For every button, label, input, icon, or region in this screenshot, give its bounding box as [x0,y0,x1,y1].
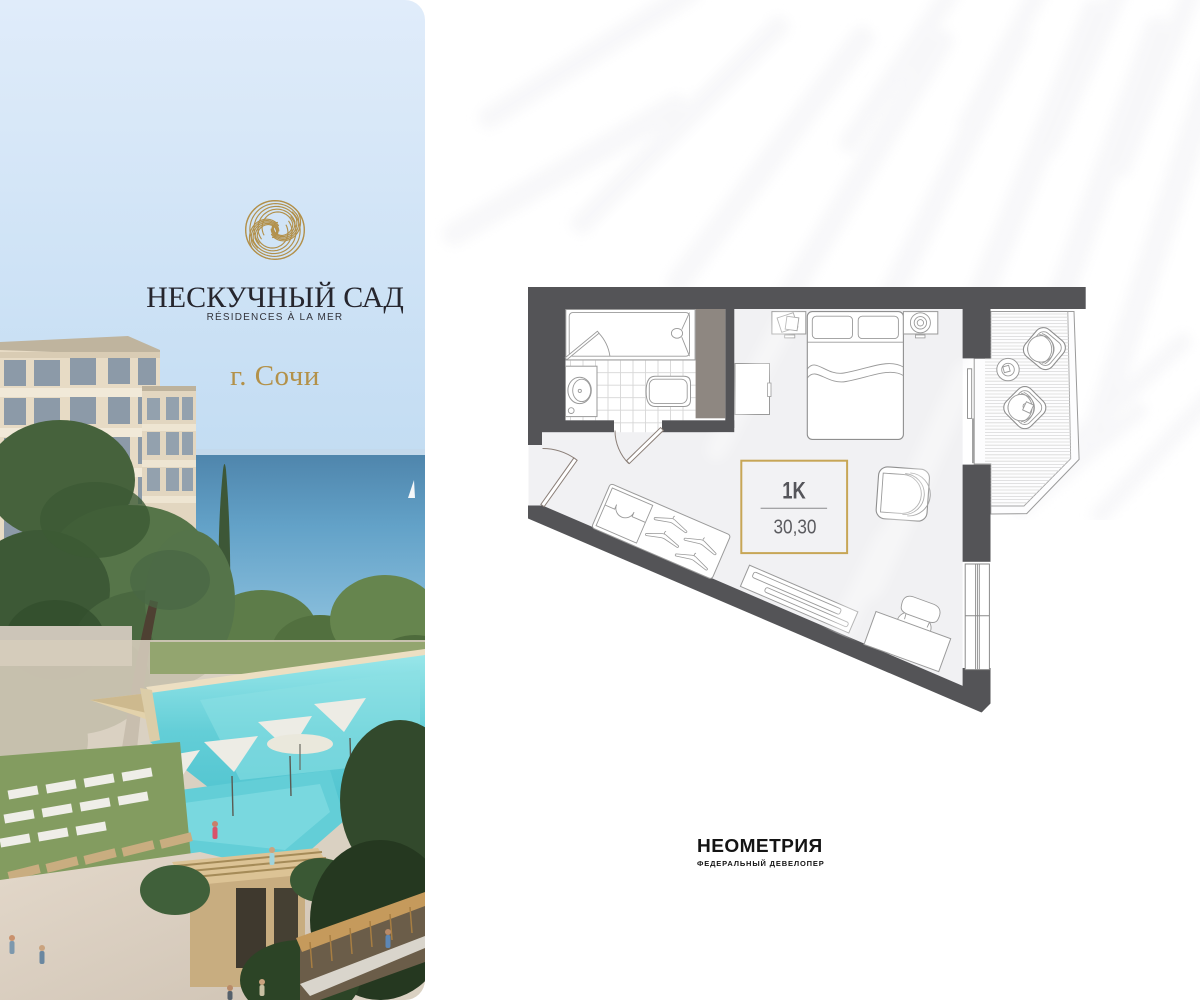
svg-text:1K: 1K [782,478,806,505]
svg-text:30,30: 30,30 [774,517,817,539]
